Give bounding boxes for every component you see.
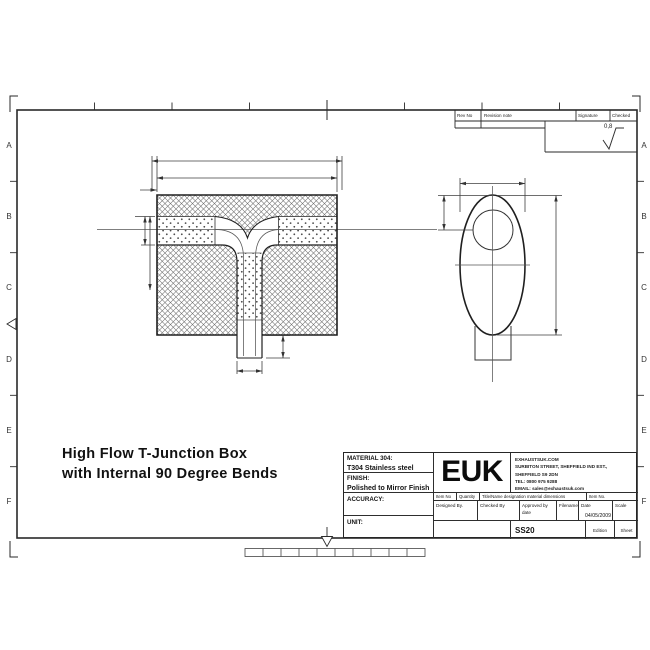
surface-roughness-icon	[603, 128, 624, 149]
drawing-number: SS20	[511, 521, 586, 539]
border-letter-right-f: F	[639, 497, 649, 506]
drawing-title-line2: with Internal 90 Degree Bends	[62, 464, 278, 484]
company-line: SHEFFIELD S9 2DN	[515, 471, 634, 478]
left-centering-mark	[7, 319, 16, 330]
border-letter-right-e: E	[639, 426, 649, 435]
accuracy-label: ACCURACY:	[347, 496, 430, 505]
quantity-header: Quantity	[457, 493, 480, 501]
company-line: TEL: 0800 975 9288	[515, 478, 634, 485]
border-letter-right-d: D	[639, 355, 649, 364]
end-view	[438, 178, 562, 382]
section-view	[97, 156, 437, 374]
border-letter-left-d: D	[4, 355, 14, 364]
border-letter-left-a: A	[4, 141, 14, 150]
graduation-strip	[245, 549, 425, 557]
item-no2-header: Item No.	[587, 493, 638, 501]
material-cell: MATERIAL 304: T304 Stainless steel	[344, 453, 434, 473]
drawing-title-line1: High Flow T-Junction Box	[62, 444, 247, 464]
unit-label: UNIT:	[347, 519, 430, 528]
border-letter-left-b: B	[4, 212, 14, 221]
finish-cell: FINISH: Polished to Mirror Finish	[344, 473, 434, 493]
date-cell: Date 04/05/2009	[579, 501, 613, 521]
finish-label: FINISH:	[347, 475, 430, 484]
border-letter-right-a: A	[639, 141, 649, 150]
border-letter-left-e: E	[4, 426, 14, 435]
rev-no-header: Rev No	[457, 111, 472, 121]
company-address: EXHAUSTSUK.COM SURBITON STREET, SHEFFIEL…	[511, 453, 638, 493]
company-line: EXHAUSTSUK.COM	[515, 456, 634, 463]
edition-cell: Edition	[586, 521, 615, 539]
border-letter-right-b: B	[639, 212, 649, 221]
filename-cell: Filename	[557, 501, 579, 521]
scale-cell: Scale	[613, 501, 638, 521]
unit-cell: UNIT:	[344, 516, 434, 538]
border-letter-left-c: C	[4, 283, 14, 292]
empty-cell	[434, 521, 511, 539]
checked-header: Checked	[612, 111, 630, 121]
surface-roughness-value: 0,8	[604, 124, 612, 130]
title-block: MATERIAL 304: T304 Stainless steel FINIS…	[343, 452, 637, 538]
company-line: EMAIL: sales@exhaustsuk.com	[515, 485, 634, 492]
finish-value: Polished to Mirror Finish	[347, 484, 430, 493]
bottom-centering-mark	[322, 537, 333, 547]
date-value: 04/05/2009	[585, 513, 611, 519]
item-no-header: Item No	[434, 493, 457, 501]
border-letter-left-f: F	[4, 497, 14, 506]
company-line: SURBITON STREET, SHEFFIELD IND EST.,	[515, 463, 634, 470]
company-logo: EUK	[434, 453, 511, 493]
signature-header: Signature	[578, 111, 598, 121]
material-value: T304 Stainless steel	[347, 464, 430, 473]
material-label: MATERIAL 304:	[347, 455, 430, 464]
drawing-canvas	[0, 0, 650, 650]
sheet-cell: Sheet	[615, 521, 638, 539]
accuracy-cell: ACCURACY:	[344, 493, 434, 516]
checked-by-cell: Checked By	[478, 501, 520, 521]
title-name-header: Title/Name designation material dimensio…	[480, 493, 587, 501]
approved-by-cell: Approved by date	[520, 501, 557, 521]
date-label: Date	[579, 501, 612, 510]
revision-note-header: Revision note	[484, 111, 512, 121]
designed-by-cell: Designed By.	[434, 501, 478, 521]
border-letter-right-c: C	[639, 283, 649, 292]
